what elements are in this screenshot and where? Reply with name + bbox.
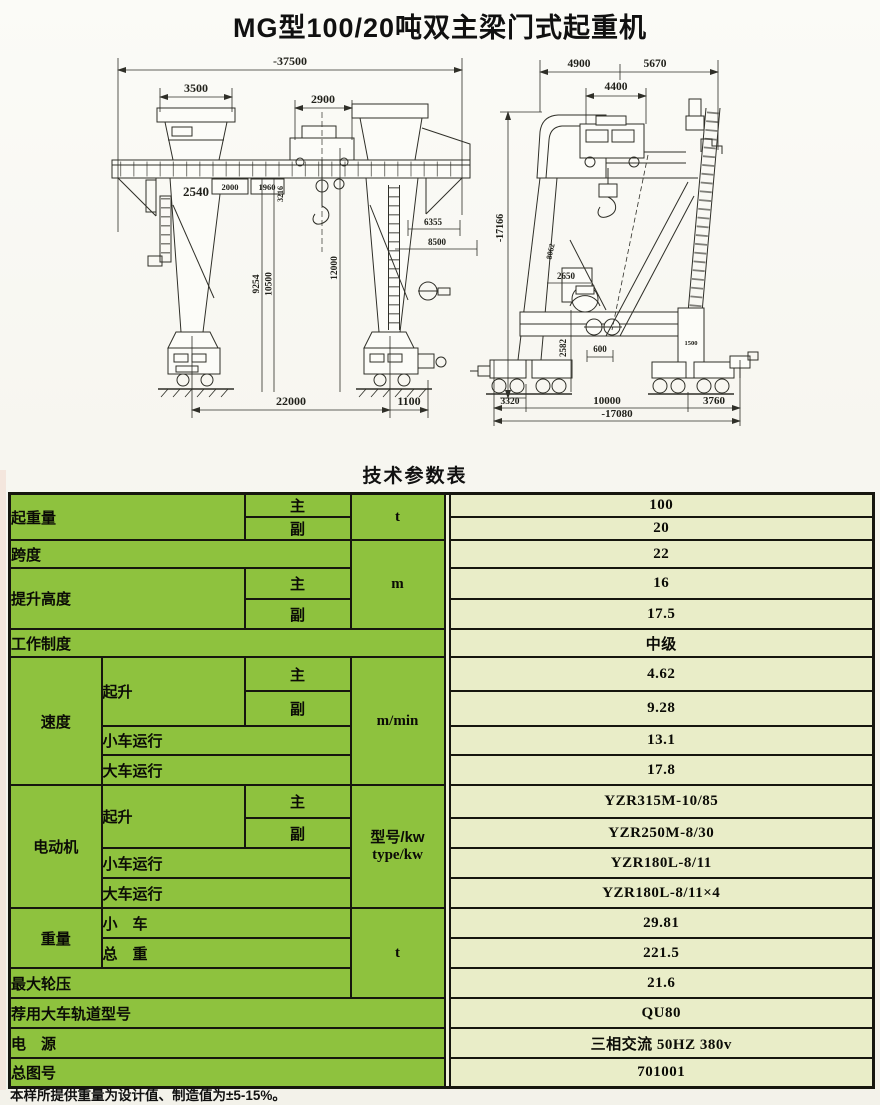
front-view [112, 104, 470, 397]
table-row: 工作制度 中级 [10, 629, 874, 657]
wheel-load-label: 最大轮压 [10, 968, 351, 998]
rail-value: QU80 [450, 998, 874, 1028]
table-row: 重量 小 车 t 29.81 [10, 908, 874, 938]
table-heading: 技术参数表 [0, 461, 830, 488]
weight-trolley-label: 小 车 [102, 908, 351, 938]
table-row: 电动机 起升 主 型号/kw type/kw YZR315M-10/85 [10, 785, 874, 818]
power-label: 电 源 [10, 1028, 445, 1058]
dim-overall-base: -17080 [601, 408, 633, 420]
weight-total-label: 总 重 [102, 938, 351, 968]
capacity-aux-value: 20 [450, 517, 874, 540]
catalog-page: MG型100/20吨双主梁门式起重机 [0, 0, 880, 1105]
table-row: 速度 起升 主 m/min 4.62 [10, 657, 874, 691]
length-unit: m [351, 540, 445, 629]
dim-leg-col: 1500 [685, 340, 698, 347]
dim-wheelbase: 10000 [593, 395, 621, 407]
motor-unit-cn: 型号/kw [370, 829, 424, 846]
dim-right-1: 6355 [424, 217, 443, 227]
dim-right-2: 8500 [428, 237, 447, 247]
side-view [470, 99, 758, 394]
speed-trolley-label: 小车运行 [102, 726, 351, 755]
capacity-main-value: 100 [450, 494, 874, 518]
power-value: 三相交流 50HZ 380v [450, 1028, 874, 1058]
motor-hoist-aux-value: YZR250M-8/30 [450, 818, 874, 848]
motor-trolley-label: 小车运行 [102, 848, 351, 878]
weight-label: 重量 [10, 908, 102, 968]
motor-aux-label: 副 [245, 818, 351, 848]
table-row: 荐用大车轨道型号 QU80 [10, 998, 874, 1028]
rail-label: 荐用大车轨道型号 [10, 998, 445, 1028]
weight-unit: t [351, 908, 445, 998]
motor-gantry-label: 大车运行 [102, 878, 351, 908]
motor-hoist-main-value: YZR315M-10/85 [450, 785, 874, 818]
dim-trolley-width: 2900 [311, 92, 335, 106]
dim-height-1: 9254 [252, 274, 262, 293]
dim-trolley-base: 4400 [605, 81, 628, 93]
dim-bogie-left: 3320 [501, 397, 520, 407]
speed-trolley-value: 13.1 [450, 726, 874, 755]
dim-vertical: 2582 [558, 339, 568, 358]
dim-mid: 2650 [557, 271, 576, 281]
dim-bogie-right: 3760 [703, 395, 726, 407]
motor-unit-en: type/kw [372, 847, 423, 863]
dim-leg-top-width: 3500 [184, 81, 208, 95]
height-main-label: 主 [245, 568, 351, 599]
dim-gauge: 600 [593, 344, 607, 354]
table-row: 起重量 主 t 100 [10, 494, 874, 518]
dim-span: 22000 [276, 394, 306, 408]
weight-total-value: 221.5 [450, 938, 874, 968]
speed-hoist-main-value: 4.62 [450, 657, 874, 691]
speed-aux-label: 副 [245, 691, 351, 726]
parameter-table: 起重量 主 t 100 副 20 跨度 m 22 提升高度 主 16 副 17.… [8, 492, 875, 1089]
dim-overall-width: -37500 [273, 54, 307, 68]
crane-drawings: -37500 3500 2900 2540 2000 1960 3216 925… [0, 0, 880, 448]
dim-diagonal: 8062 [544, 243, 556, 261]
speed-gantry-label: 大车运行 [102, 755, 351, 785]
dim-leg-width: 2540 [183, 184, 209, 199]
capacity-unit: t [351, 494, 445, 541]
table-row: 电 源 三相交流 50HZ 380v [10, 1028, 874, 1058]
height-aux-value: 17.5 [450, 599, 874, 629]
height-main-value: 16 [450, 568, 874, 599]
span-label: 跨度 [10, 540, 351, 568]
dim-height-3: 12000 [330, 256, 340, 280]
motor-unit: 型号/kw type/kw [351, 785, 445, 908]
scan-artifact [0, 470, 6, 1090]
speed-unit: m/min [351, 657, 445, 785]
motor-label: 电动机 [10, 785, 102, 908]
span-value: 22 [450, 540, 874, 568]
wheel-load-value: 21.6 [450, 968, 874, 998]
capacity-aux-label: 副 [245, 517, 351, 540]
dim-box-b: 1960 [259, 182, 276, 192]
capacity-main-label: 主 [245, 494, 351, 518]
speed-hoist-label: 起升 [102, 657, 245, 726]
table-row: 跨度 m 22 [10, 540, 874, 568]
dim-box-a: 2000 [222, 182, 239, 192]
motor-trolley-value: YZR180L-8/11 [450, 848, 874, 878]
height-aux-label: 副 [245, 599, 351, 629]
drawing-no-value: 701001 [450, 1058, 874, 1087]
motor-hoist-label: 起升 [102, 785, 245, 848]
speed-main-label: 主 [245, 657, 351, 691]
dim-overhang: 1100 [397, 394, 420, 408]
speed-gantry-value: 17.8 [450, 755, 874, 785]
weight-trolley-value: 29.81 [450, 908, 874, 938]
duty-value: 中级 [450, 629, 874, 657]
capacity-label: 起重量 [10, 494, 245, 541]
footnote: 本样所提供重量为设计值、制造值为±5-15%。 [10, 1084, 286, 1104]
motor-gantry-value: YZR180L-8/11×4 [450, 878, 874, 908]
drawing-no-label: 总图号 [10, 1058, 445, 1087]
dim-overall-height: -17166 [495, 214, 506, 242]
table-row: 总图号 701001 [10, 1058, 874, 1087]
dim-top-b: 5670 [644, 58, 667, 70]
speed-hoist-aux-value: 9.28 [450, 691, 874, 726]
height-label: 提升高度 [10, 568, 245, 629]
duty-label: 工作制度 [10, 629, 445, 657]
speed-label: 速度 [10, 657, 102, 785]
dim-height-2: 10500 [265, 272, 275, 296]
motor-main-label: 主 [245, 785, 351, 818]
dim-top-a: 4900 [568, 58, 591, 70]
dim-girder-depth: 3216 [276, 186, 285, 202]
